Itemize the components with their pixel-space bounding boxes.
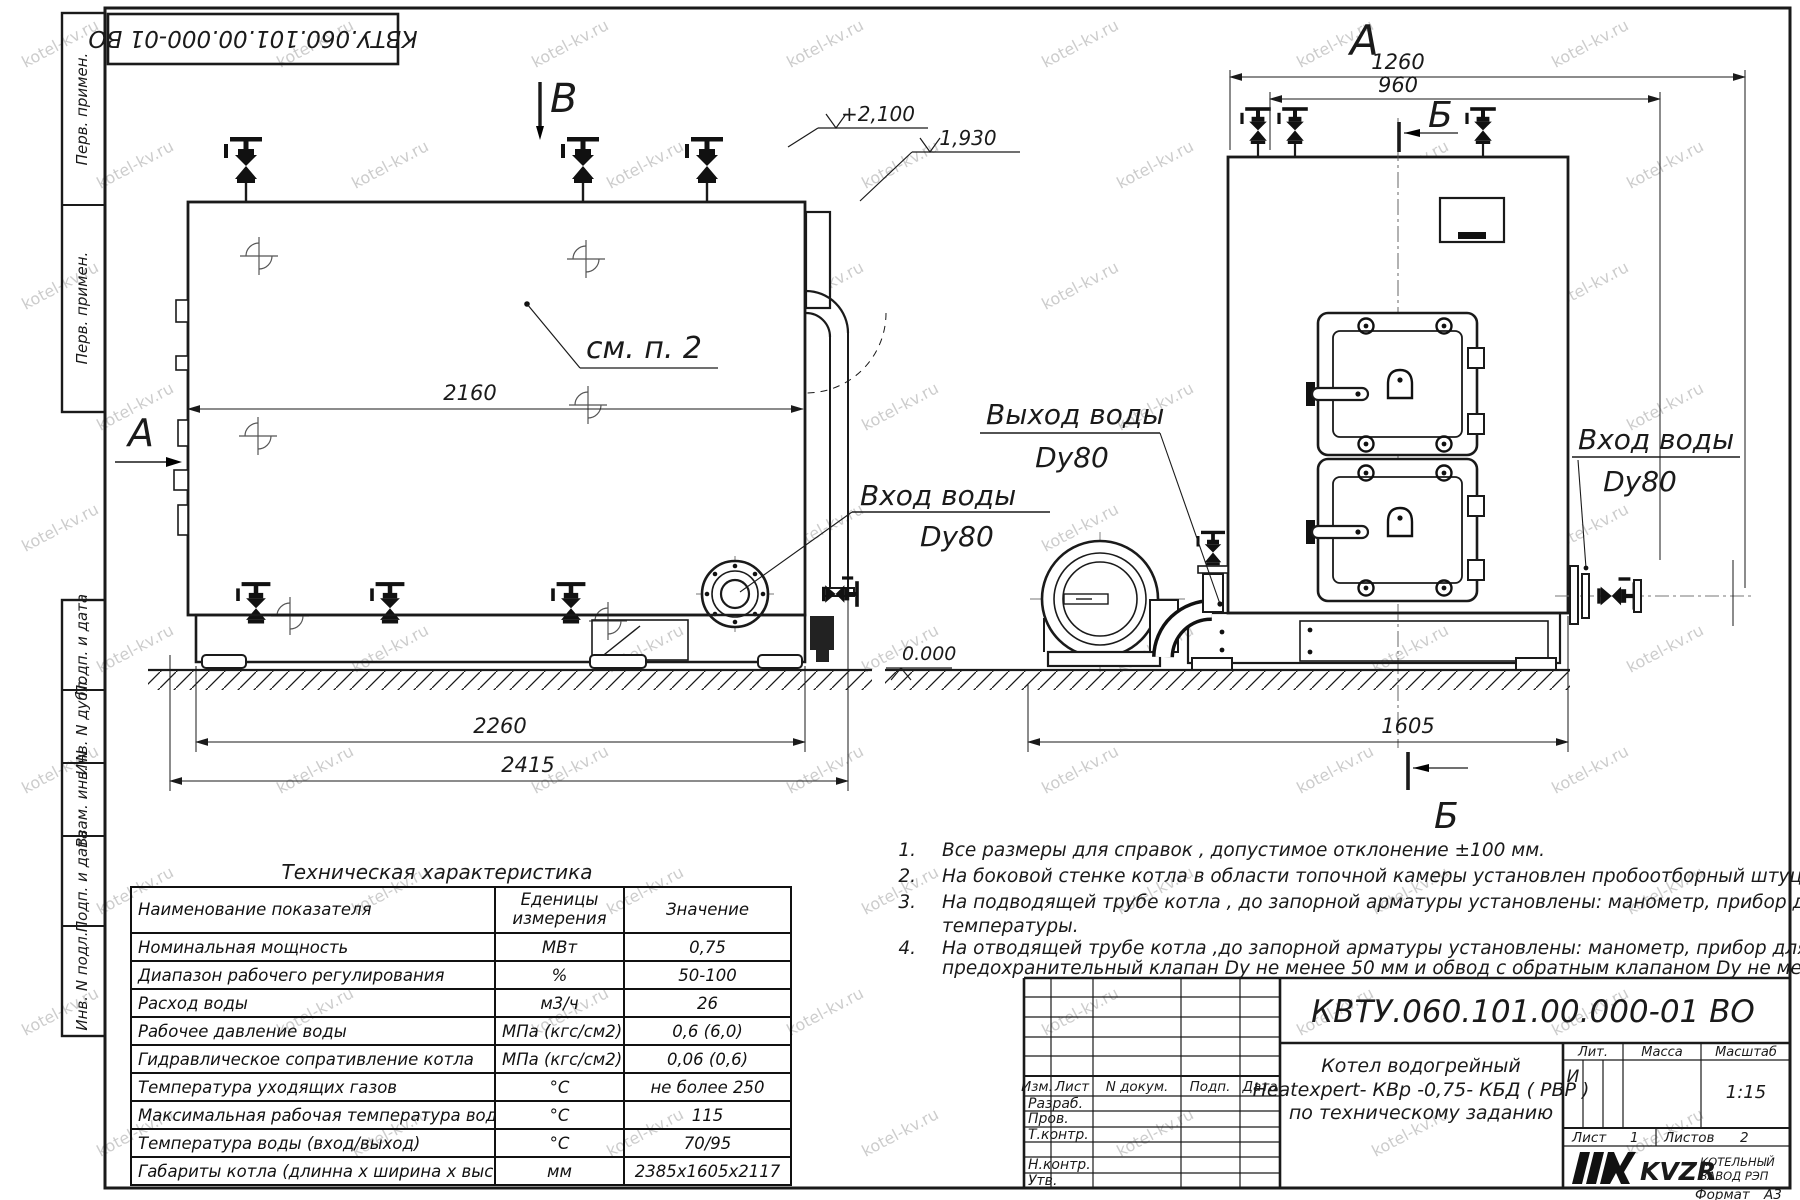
cell-value: 0,6 (6,0) [624,1017,791,1045]
cell-name: Температура уходящих газов [131,1073,495,1101]
outlet-front-line2: Dy80 [1035,441,1109,474]
cell-name: Гидравлическое сопративление котла [131,1045,495,1073]
role-tkontr: Т.контр. [1028,1127,1089,1143]
note-text: На отводящей трубе котла ,до запорной ар… [942,938,1800,959]
role-prov: Пров. [1028,1111,1069,1127]
table-header-row: Наименование показателя Еденицы измерени… [131,887,791,933]
cell-value: 0,06 (0,6) [624,1045,791,1073]
note-text: На боковой стенке котла в области топочн… [942,866,1800,887]
top-stamp: КВТУ.060.101.00.000-01 ВО [88,14,417,64]
cell-name: Габариты котла (длинна х ширина х высота… [131,1157,495,1185]
outlet-front-line1: Выход воды [986,398,1164,431]
dim-2160-value: 2160 [443,381,496,405]
cell-name: Максимальная рабочая температура воды [131,1101,495,1129]
cell-value: 2385х1605х2117 [624,1157,791,1185]
lit-label: Лит. [1577,1045,1608,1060]
cell-units: МВт [495,933,624,961]
view-a-mark: А [115,411,182,467]
margin-label: Перв. примен. [73,252,91,365]
scale-value: 1:15 [1726,1082,1766,1103]
cell-value: 115 [624,1101,791,1129]
sheets-value: 2 [1740,1130,1749,1146]
lit-value: И [1567,1067,1580,1087]
cell-units: МПа (кгс/см2) [495,1017,624,1045]
pedestal-front [1188,613,1560,670]
dim-2415-value: 2415 [501,753,554,777]
elevation-2100: +2,100 [788,102,928,147]
inlet-label-front: Вход воды Dy80 [1572,423,1740,570]
section-b2-bottom-label: Б [1434,796,1459,837]
stamp-code: КВТУ.060.101.00.000-01 ВО [88,25,417,51]
cell-value: 50-100 [624,961,791,989]
see-note-label: см. п. 2 [586,331,702,366]
doc-number: КВТУ.060.101.00.000-01 ВО [1311,994,1755,1030]
margin-label: Инв. N подл. [73,931,91,1030]
inlet-side-line1: Вход воды [860,479,1016,512]
side-wall-fittings [174,300,188,535]
role-utv: Утв. [1028,1173,1057,1189]
note-number: 1. [898,840,916,861]
notes-list: 1. Все размеры для справок , допустимое … [898,840,1800,979]
lit-mass-scale: Лит. Масса Масштаб И 1:15 [1567,1045,1777,1103]
title-block: КВТУ.060.101.00.000-01 ВО Изм. Лист N до… [1021,978,1790,1200]
header-name: Наименование показателя [131,887,495,933]
header-units: Еденицы измерения [495,887,624,933]
mass-label: Масса [1641,1045,1682,1060]
inspection-hatch [1440,198,1504,242]
section-b2-top: Б [1399,95,1458,152]
inlet-side-line2: Dy80 [920,520,994,553]
table-row: Расход водым3/ч26 [131,989,791,1017]
note-number: 3. [898,892,916,913]
sheet-label: Лист [1571,1130,1607,1146]
table-row: Рабочее давление водыМПа (кгс/см2)0,6 (6… [131,1017,791,1045]
scale-label: Масштаб [1715,1045,1777,1060]
sheets-label: Листов [1663,1130,1714,1146]
elevation-1930: 1,930 [860,126,1020,201]
top-valves-front [1258,144,1483,157]
cell-value: 26 [624,989,791,1017]
note-text: температуры. [942,916,1079,937]
note-text: Все размеры для справок , допустимое отк… [942,840,1545,861]
table-row: Температура воды (вход/выход)°С70/95 [131,1129,791,1157]
col-list: Лист [1054,1079,1090,1095]
title-block-roles: Разраб. Пров. Т.контр. Н.контр. Утв. [1028,1096,1091,1189]
note-text: На подводящей трубе котла , до запорной … [942,892,1800,913]
blowdown-device [810,616,834,662]
company-line2: ЗАВОД РЭП [1700,1169,1769,1183]
sheet-row: Лист 1 Листов 2 [1571,1130,1749,1146]
cell-name: Рабочее давление воды [131,1017,495,1045]
table-row: Температура уходящих газов°Сне более 250 [131,1073,791,1101]
cell-name: Расход воды [131,989,495,1017]
valve-icon [1465,107,1495,144]
tech-table: Наименование показателя Еденицы измерени… [130,886,790,1186]
elevation-zero-label: 0.000 [902,643,956,665]
cell-units: мм [495,1157,624,1185]
dim-2415: 2415 [170,600,848,791]
logo-icon [1572,1152,1636,1184]
col-izm: Изм. [1021,1079,1053,1095]
view-a-label: А [125,411,154,455]
section-b-label: B [550,76,577,122]
valve-icon [224,137,262,183]
top-valves-side [246,182,707,202]
valve-icon [1240,107,1270,144]
note-number: 2. [898,866,916,887]
col-ndokum: N докум. [1106,1079,1169,1095]
valve-icon [685,137,723,183]
cell-value: 70/95 [624,1129,791,1157]
table-row: Гидравлическое сопративление котлаМПа (к… [131,1045,791,1073]
cell-units: °С [495,1101,624,1129]
margin-label: Перв. примен. [73,53,91,166]
format-row: Формат А3 [1695,1187,1782,1200]
cell-units: °С [495,1129,624,1157]
doc-name: Котел водогрейный Heatexpert- КВр -0,75-… [1253,1055,1590,1124]
inlet-front-line1: Вход воды [1578,423,1734,456]
doc-name-line3: по техническому заданию [1289,1102,1553,1124]
section-b2-top-label: Б [1428,95,1453,136]
boiler-side-view [148,137,886,690]
role-nkontr: Н.контр. [1028,1157,1091,1173]
drawing-sheet: kotel-kv.rukotel-kv.rukotel-kv.rukotel-k… [0,0,1800,1200]
note-text: предохранительный клапан Dу не менее 50 … [942,958,1800,979]
table-row: Диапазон рабочего регулирования%50-100 [131,961,791,989]
format-label: Формат [1695,1187,1751,1200]
header-value: Значение [624,887,791,933]
cell-units: МПа (кгс/см2) [495,1045,624,1073]
inlet-front-line2: Dy80 [1603,465,1677,498]
rear-duct [806,212,886,596]
format-value: А3 [1763,1187,1782,1200]
sheet-value: 1 [1630,1130,1639,1146]
role-razrab: Разраб. [1028,1096,1083,1112]
left-margin-labels: Перв. примен. Перв. примен. Подп. и дата… [73,53,91,1031]
elevation-2100-label: +2,100 [841,102,915,126]
dim-960-value: 960 [1378,73,1418,97]
title-block-headers: Изм. Лист N докум. Подп. Дата [1021,1079,1277,1095]
doc-name-line2: Heatexpert- КВр -0,75- КБД ( РВР ) [1253,1079,1590,1101]
cell-value: 0,75 [624,933,791,961]
tech-table-title: Техническая характеристика [281,860,592,884]
doc-name-line1: Котел водогрейный [1321,1055,1521,1077]
section-b-mark: B [536,76,577,140]
cell-units: м3/ч [495,989,624,1017]
cell-units: % [495,961,624,989]
table-row: Максимальная рабочая температура воды°С1… [131,1101,791,1129]
cell-value: не более 250 [624,1073,791,1101]
dim-1260-value: 1260 [1371,50,1424,74]
latch-handle-icon [1388,370,1412,398]
note-number: 4. [898,938,916,959]
valve-icon [1277,107,1307,144]
col-podp: Подп. [1190,1079,1231,1095]
ground-line-right [885,670,1570,690]
table-row: Габариты котла (длинна х ширина х высота… [131,1157,791,1185]
company-logo: KVZR КОТЕЛЬНЫЙ ЗАВОД РЭП [1572,1152,1775,1186]
cell-name: Температура воды (вход/выход) [131,1129,495,1157]
cell-units: °С [495,1073,624,1101]
section-b2-bottom: Б [1408,752,1468,837]
valve-icon [561,137,599,183]
elevation-1930-label: 1,930 [939,126,996,150]
base-frame-side [196,615,805,668]
dim-1605-value: 1605 [1381,714,1434,738]
cell-name: Номинальная мощность [131,933,495,961]
ground-line-left [148,670,872,690]
outlet-piping [1163,531,1228,657]
company-line1: КОТЕЛЬНЫЙ [1700,1154,1775,1169]
cell-name: Диапазон рабочего регулирования [131,961,495,989]
margin-label: Подп. и дата [73,830,91,932]
latch-handle-icon [1388,508,1412,536]
table-row: Номинальная мощностьМВт0,75 [131,933,791,961]
dim-2260-value: 2260 [473,714,526,738]
